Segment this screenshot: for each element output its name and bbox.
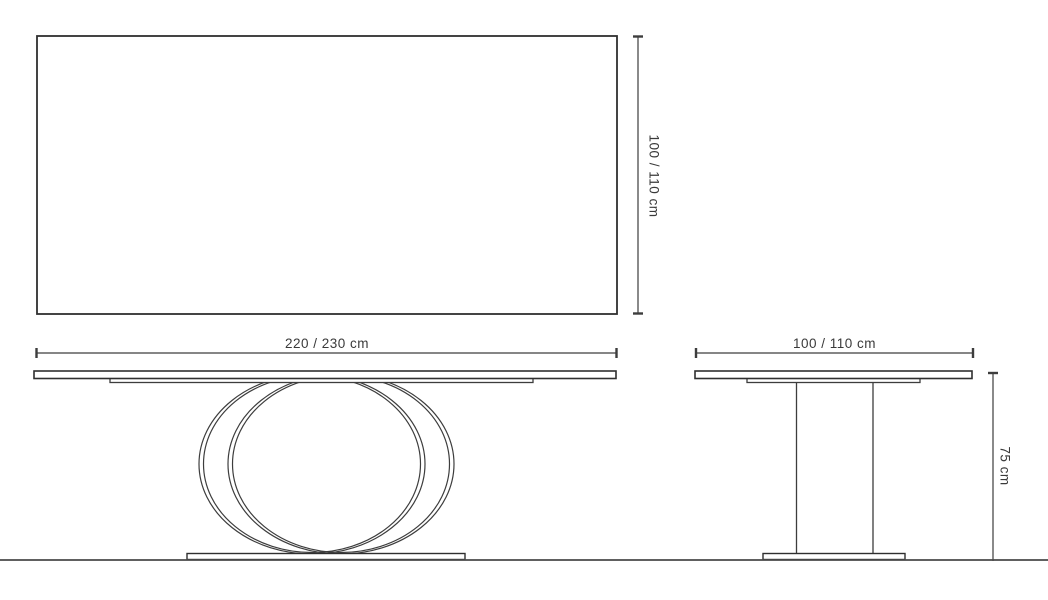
side-column: [797, 382, 874, 554]
plan-tabletop-outline: [37, 36, 617, 314]
side-height-label: 75 cm: [997, 446, 1012, 485]
side-tabletop: [695, 371, 972, 379]
plan-depth-label: 100 / 110 cm: [646, 134, 661, 217]
side-width-label: 100 / 110 cm: [793, 336, 876, 351]
front-width-label: 220 / 230 cm: [285, 336, 369, 351]
table-dimension-diagram: 100 / 110 cm 220 / 230 cm: [0, 0, 1048, 600]
front-view: [34, 371, 616, 560]
plan-view: [37, 36, 617, 314]
front-tabletop: [34, 371, 616, 379]
side-view: [695, 371, 972, 560]
front-base-plate: [187, 554, 465, 560]
ring-right-inner: [233, 376, 450, 553]
side-base-plate: [763, 554, 905, 560]
plan-depth-dimension: [633, 37, 643, 314]
ring-left-inner: [204, 376, 421, 553]
side-height-dimension: [988, 373, 998, 561]
diagram-svg: 100 / 110 cm 220 / 230 cm: [0, 0, 1048, 600]
ring-base: [199, 374, 454, 554]
